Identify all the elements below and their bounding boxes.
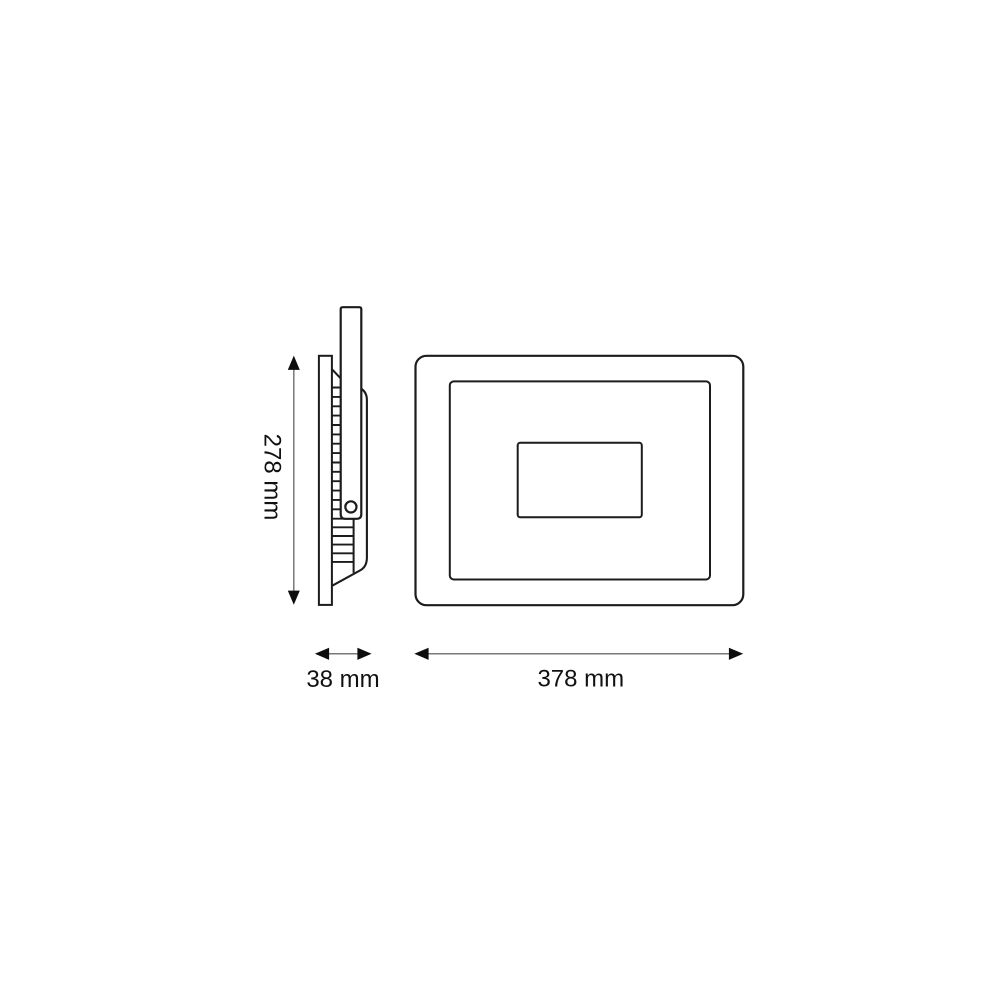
- svg-text:38 mm: 38 mm: [306, 666, 379, 693]
- svg-text:278 mm: 278 mm: [258, 434, 285, 521]
- svg-text:378 mm: 378 mm: [537, 666, 624, 693]
